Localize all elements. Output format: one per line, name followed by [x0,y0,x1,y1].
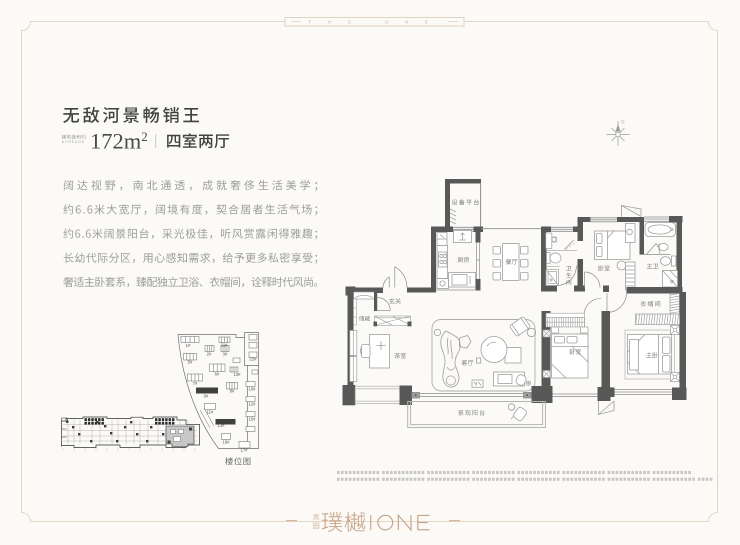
svg-text:THE: THE [308,19,368,24]
svg-text:1#: 1# [186,343,191,348]
svg-text:ONE: ONE [385,19,444,24]
svg-text:172m2: 172m2 [90,129,148,154]
svg-text:15#: 15# [249,417,257,422]
svg-text:10#: 10# [249,387,257,392]
svg-text:2#: 2# [207,352,212,357]
svg-text:5#: 5# [188,360,193,365]
svg-text:16#: 16# [223,440,231,445]
svg-text:6#: 6# [215,372,220,377]
svg-text:17#: 17# [241,448,249,453]
svg-text:11#: 11# [207,410,214,415]
svg-text:13#: 13# [234,372,242,377]
svg-text:12#: 12# [249,402,257,407]
svg-text:8#: 8# [230,389,235,394]
svg-text:13#: 13# [218,423,226,428]
svg-text:9#: 9# [204,394,209,399]
svg-text:3#: 3# [223,352,228,357]
svg-text:ACREAGE: ACREAGE [62,140,85,144]
svg-text:22#: 22# [250,357,258,362]
svg-text:7#: 7# [193,381,198,386]
svg-text:21#: 21# [221,343,229,348]
